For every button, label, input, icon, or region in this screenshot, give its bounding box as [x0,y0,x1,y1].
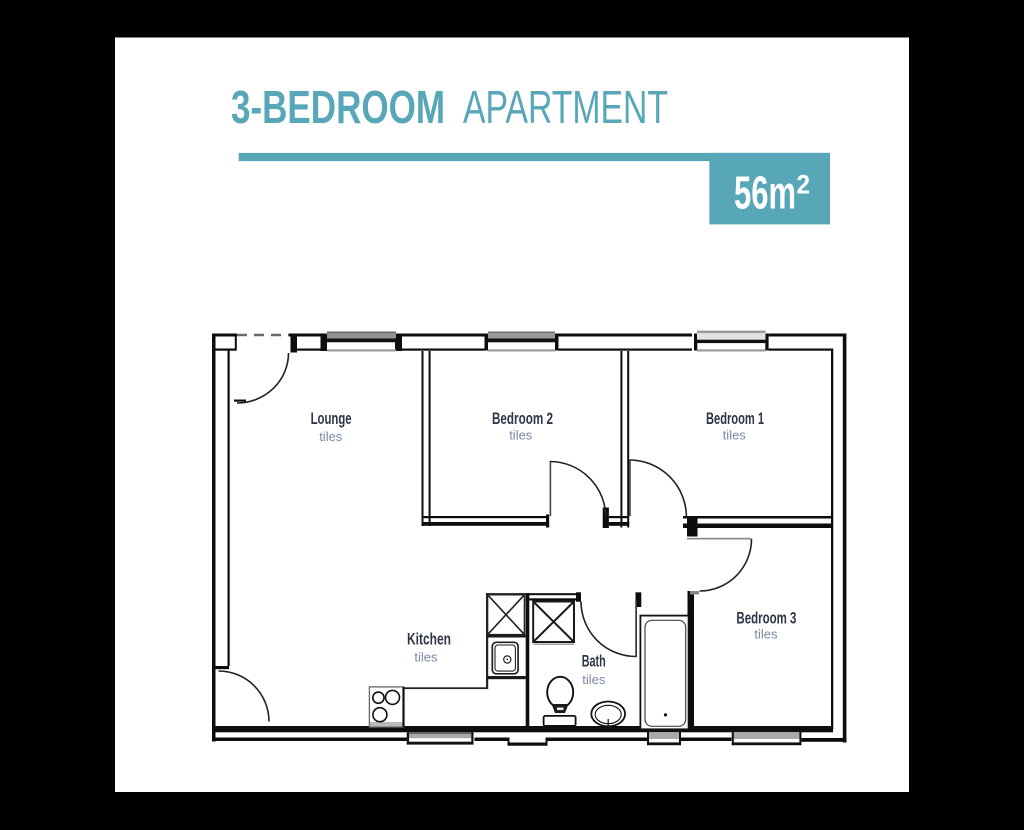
svg-text:tiles: tiles [723,428,747,443]
svg-text:3-BEDROOM: 3-BEDROOM [231,81,445,133]
svg-text:Bedroom 3: Bedroom 3 [736,609,796,628]
svg-text:tiles: tiles [582,672,606,687]
svg-text:APARTMENT: APARTMENT [463,81,668,133]
svg-text:Bath: Bath [582,652,606,671]
svg-text:tiles: tiles [509,428,533,443]
svg-text:Kitchen: Kitchen [407,630,451,649]
svg-text:tiles: tiles [319,429,343,444]
svg-text:tiles: tiles [414,650,438,665]
svg-text:Bedroom 2: Bedroom 2 [492,409,553,428]
svg-text:Lounge: Lounge [311,409,352,428]
svg-text:56m: 56m [734,167,796,219]
svg-text:tiles: tiles [754,627,778,642]
svg-text:Bedroom 1: Bedroom 1 [706,409,764,428]
svg-text:2: 2 [797,170,811,200]
